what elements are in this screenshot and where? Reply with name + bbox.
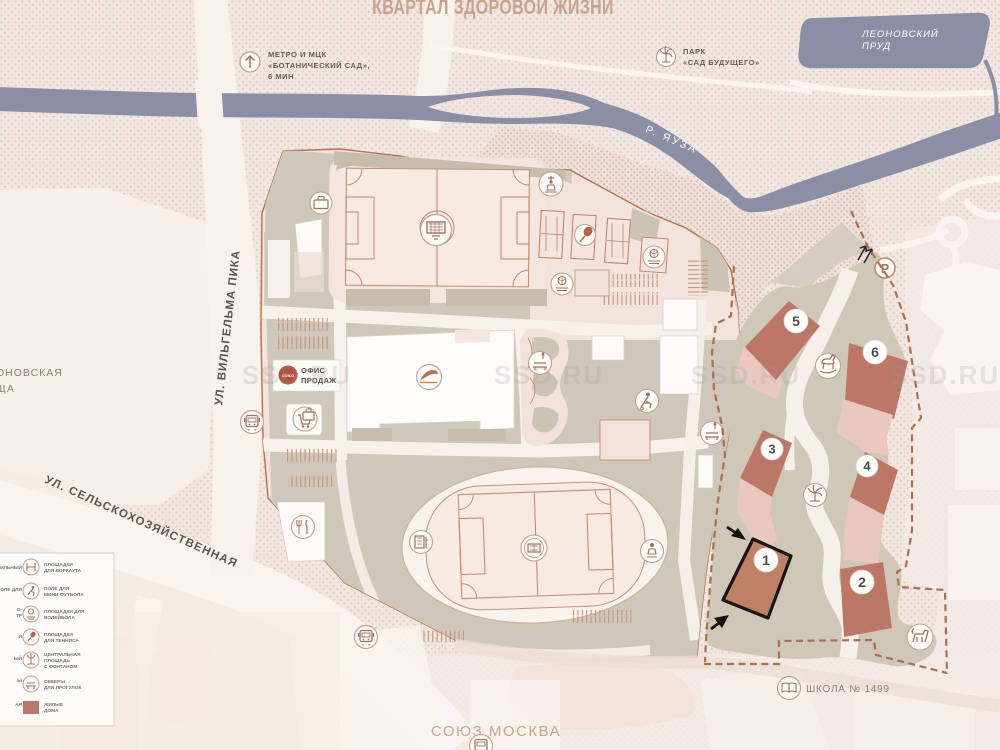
svg-text:SSD.RU: SSD.RU [242,360,352,390]
svg-text:ДЛЯ ПРОГУЛОК: ДЛЯ ПРОГУЛОК [44,685,81,691]
svg-text:1: 1 [762,552,770,568]
svg-text:6 МИН: 6 МИН [268,72,294,81]
svg-text:ШКОЛА № 1499: ШКОЛА № 1499 [806,684,890,695]
svg-text:СОЮЗ МОСКВА: СОЮЗ МОСКВА [431,723,561,740]
svg-text:ПЛОЩАДКИ: ПЛОЩАДКИ [44,562,73,568]
svg-text:SSD.RU: SSD.RU [691,360,801,390]
svg-text:ДОМА: ДОМА [44,708,59,714]
svg-text:«САД БУДУЩЕГО»: «САД БУДУЩЕГО» [683,58,760,67]
svg-text:SSD.RU: SSD.RU [494,360,604,390]
svg-text:ДЛЯ ТЕННИСА: ДЛЯ ТЕННИСА [44,638,79,644]
svg-text:ЛЕОНОВСКИЙ: ЛЕОНОВСКИЙ [861,28,939,40]
svg-text:СКВЕРЫ: СКВЕРЫ [44,679,65,685]
svg-text:ПЛОЩАДКИ: ПЛОЩАДКИ [44,632,73,638]
svg-text:ТР: ТР [16,613,23,619]
svg-text:ЩА: ЩА [0,383,15,395]
svg-text:SSD.RU: SSD.RU [890,360,1000,390]
svg-text:АЯ: АЯ [15,702,22,708]
svg-text:О-: О- [17,607,23,613]
svg-text:ОНОВСКАЯ: ОНОВСКАЯ [0,367,63,379]
svg-text:2: 2 [858,574,866,590]
svg-text:МИНИ-ФУТБОЛА: МИНИ-ФУТБОЛА [44,592,84,598]
svg-text:ЖИЛЫЕ: ЖИЛЫЕ [43,702,64,708]
svg-text:5: 5 [792,313,800,329]
svg-text:3: 3 [768,442,775,457]
svg-text:ДЛЯ ВОРКАУТА: ДЛЯ ВОРКАУТА [44,568,82,574]
svg-text:Ы: Ы [17,678,22,684]
svg-text:«БОТАНИЧЕСКИЙ САД»,: «БОТАНИЧЕСКИЙ САД», [268,61,370,70]
svg-text:КВАРТАЛ ЗДОРОВОЙ ЖИЗНИ: КВАРТАЛ ЗДОРОВОЙ ЖИЗНИ [372,0,614,19]
svg-text:ПРУД: ПРУД [862,41,891,52]
svg-text:ПЛОЩАДКИ ДЛЯ: ПЛОЩАДКИ ДЛЯ [44,609,85,615]
svg-text:4: 4 [863,459,871,474]
svg-text:6: 6 [871,344,879,360]
svg-text:ЦЕНТРАЛЬНАЯ: ЦЕНТРАЛЬНАЯ [44,652,81,658]
svg-text:ОЛЕ ДЛЯ: ОЛЕ ДЛЯ [0,587,22,593]
svg-text:ПОЛЕ ДЛЯ: ПОЛЕ ДЛЯ [44,586,70,592]
svg-text:И: И [19,634,23,640]
svg-text:ПЛОЩАДЬ: ПЛОЩАДЬ [44,658,70,664]
svg-text:МЕТРО И МЦК: МЕТРО И МЦК [268,50,327,59]
svg-text:С ФОНТАНОМ: С ФОНТАНОМ [44,664,77,670]
svg-text:ПАРК: ПАРК [683,47,706,56]
